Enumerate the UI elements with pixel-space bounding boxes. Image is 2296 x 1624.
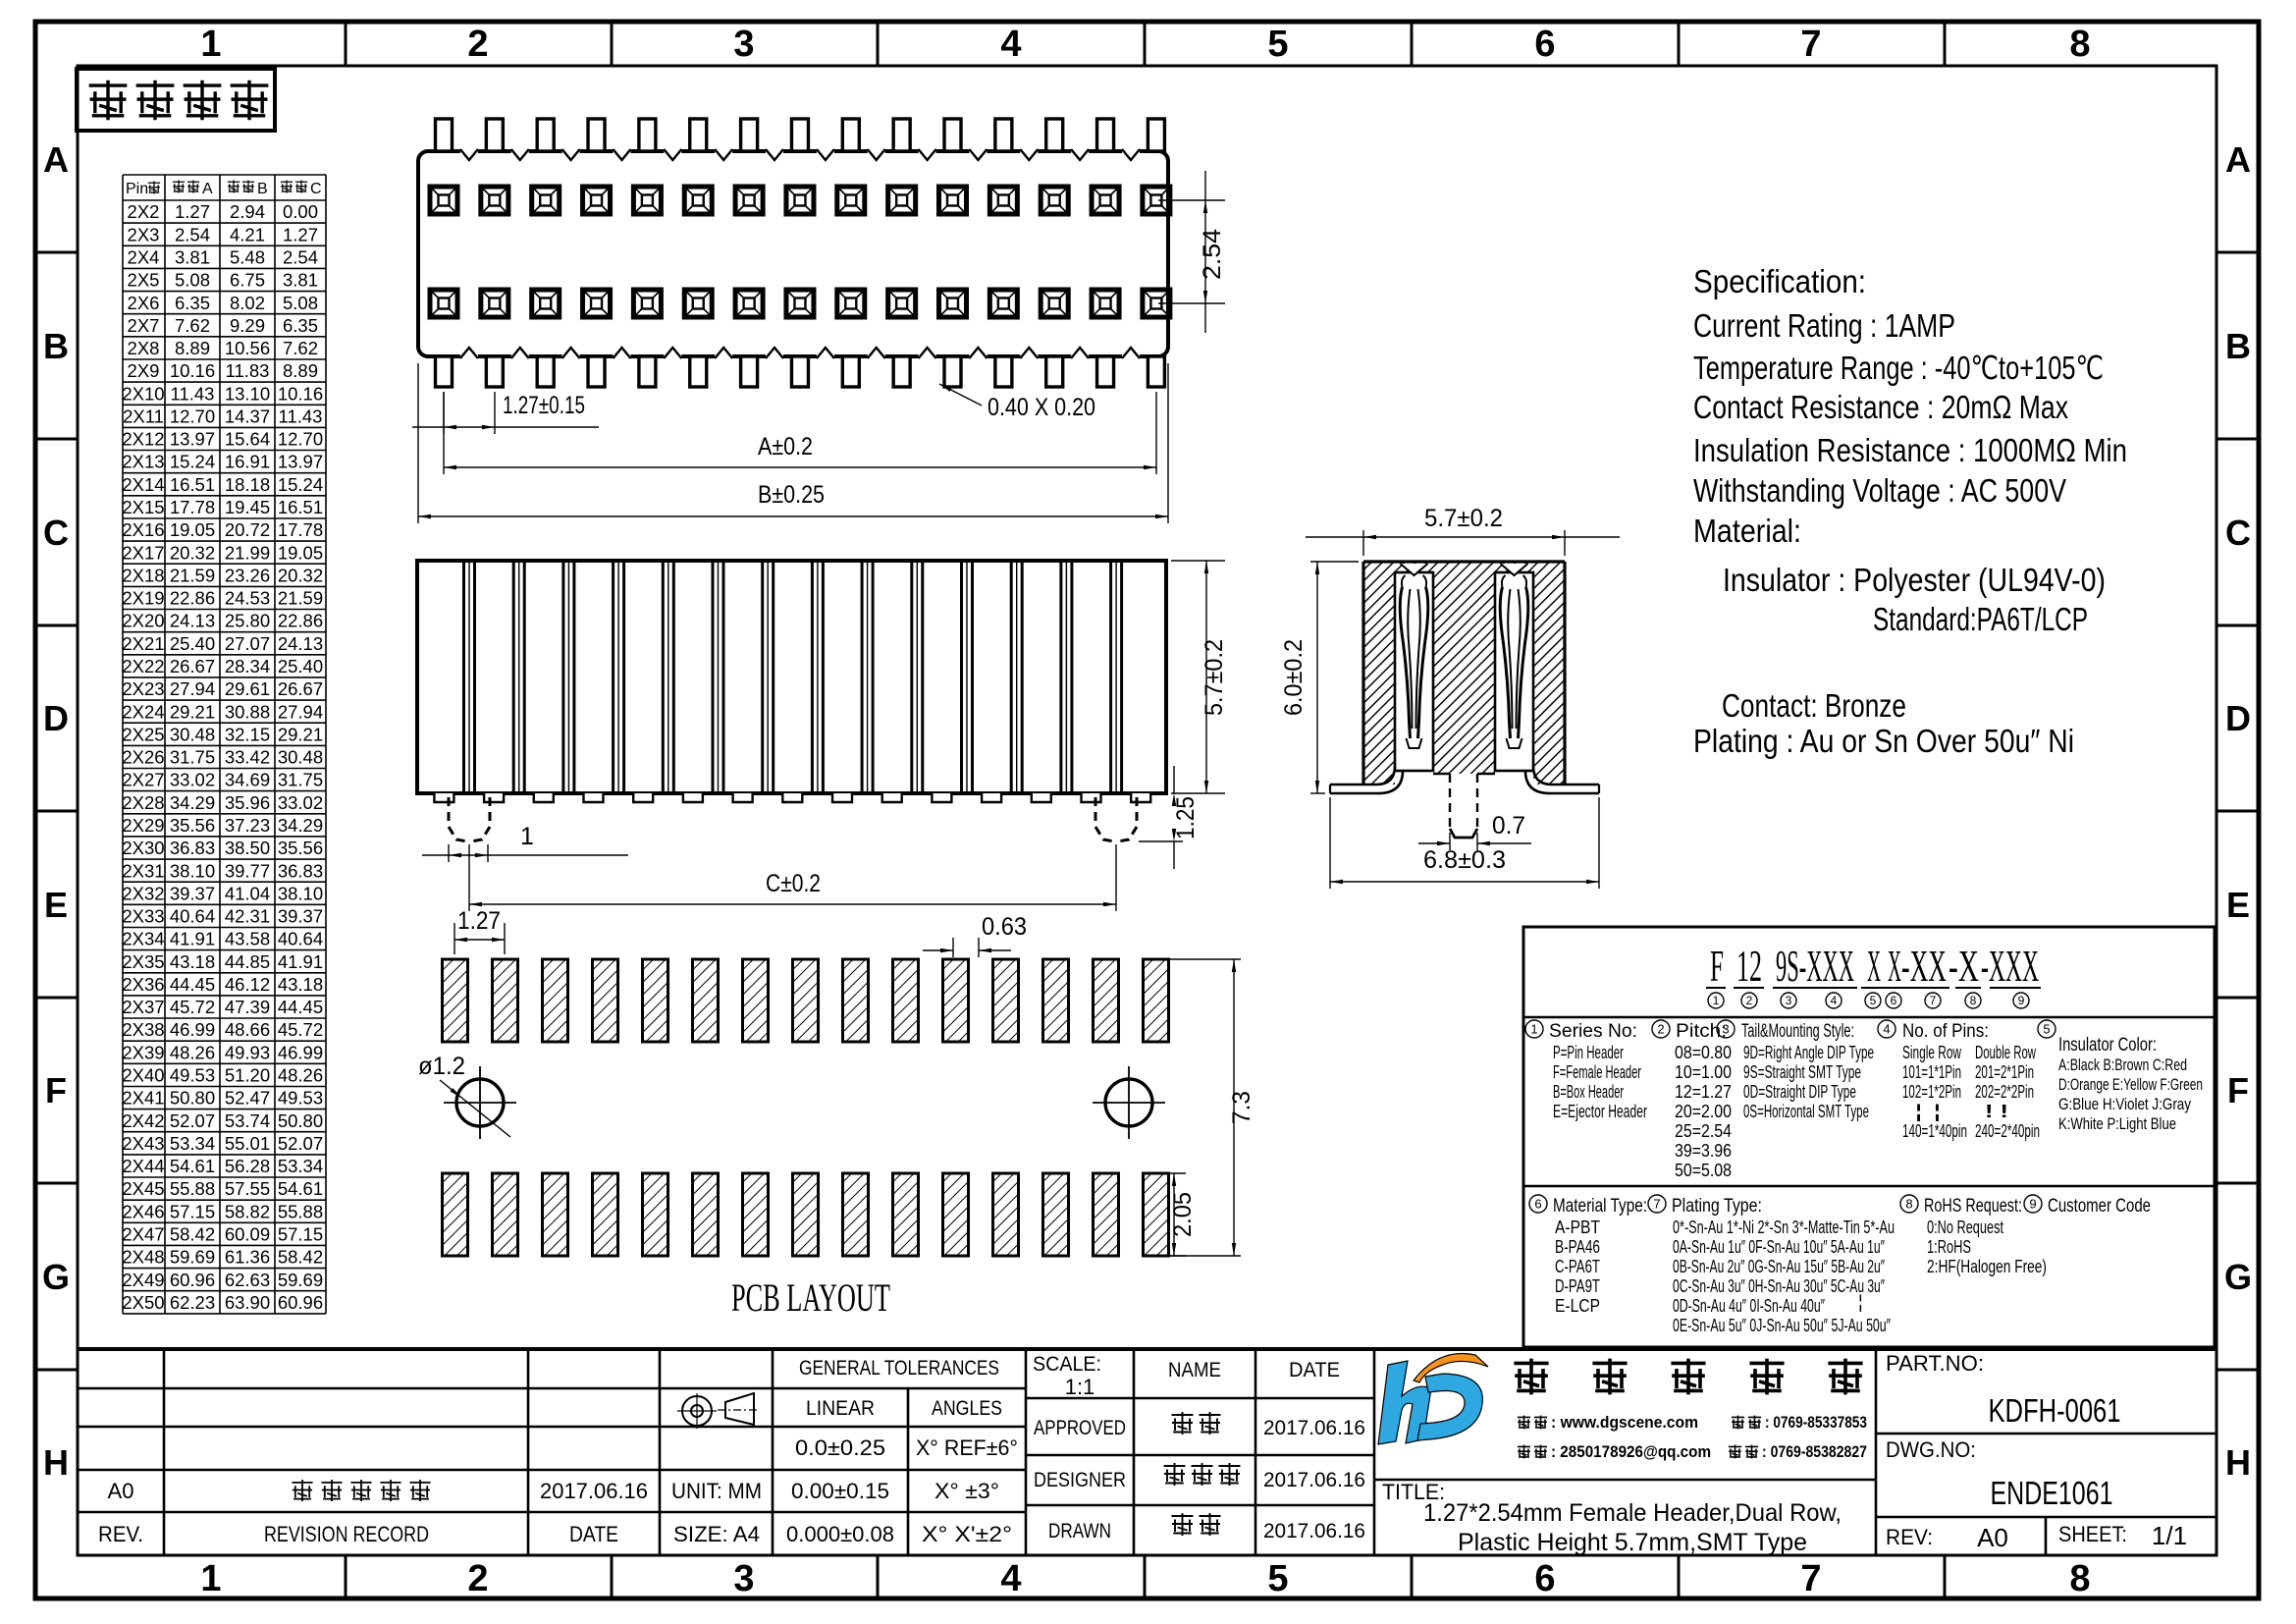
svg-text:Double Row: Double Row [1975,1043,2037,1062]
svg-text:63.90: 63.90 [225,1292,270,1313]
svg-text:43.18: 43.18 [278,974,323,995]
svg-text:! !: ! ! [1985,1102,2008,1121]
svg-text:REV.: REV. [98,1522,143,1546]
svg-text:30.48: 30.48 [278,747,323,768]
svg-text:12=1.27: 12=1.27 [1675,1082,1732,1102]
svg-text:0.40 X 0.20: 0.40 X 0.20 [988,394,1095,421]
svg-text:Pin: Pin [126,181,148,197]
svg-text:1.27*2.54mm Female Header,Dual: 1.27*2.54mm Female Header,Dual Row, [1423,1499,1842,1527]
svg-text:2:HF(Halogen Free): 2:HF(Halogen Free) [1927,1257,2047,1276]
svg-text:17.78: 17.78 [170,497,215,517]
svg-text:B: B [2225,326,2251,366]
svg-text:7: 7 [1653,1197,1660,1212]
svg-text:2X45: 2X45 [122,1178,164,1199]
svg-text:15.64: 15.64 [225,429,270,450]
svg-text:KDFH-0061: KDFH-0061 [1989,1392,2121,1429]
svg-text:10.16: 10.16 [278,383,323,404]
svg-text:59.69: 59.69 [170,1247,215,1268]
svg-text:SIZE: A4: SIZE: A4 [673,1522,760,1546]
svg-text:DESIGNER: DESIGNER [1034,1469,1126,1491]
svg-text:40.64: 40.64 [170,906,215,927]
svg-text:C±0.2: C±0.2 [766,870,821,897]
svg-text:Material:: Material: [1693,513,1801,549]
svg-text:26.67: 26.67 [278,678,323,699]
svg-text:C: C [43,513,69,553]
svg-text:43.58: 43.58 [225,929,270,949]
svg-text:2X25: 2X25 [122,724,164,744]
svg-text:: 0769-85337853: : 0769-85337853 [1765,1413,1867,1432]
svg-text:53.34: 53.34 [170,1133,215,1154]
svg-text:7.3: 7.3 [1228,1091,1255,1124]
svg-text:A0: A0 [1977,1523,2008,1552]
svg-text:140=1*40pin: 140=1*40pin [1902,1121,1967,1141]
svg-text:¦: ¦ [1858,1292,1863,1312]
svg-text:2.05: 2.05 [1169,1192,1197,1237]
svg-text:: 0769-85382827: : 0769-85382827 [1762,1442,1867,1461]
svg-text:: www.dgscene.com: : www.dgscene.com [1551,1413,1698,1432]
svg-text:5: 5 [1267,24,1288,65]
svg-text:38.10: 38.10 [278,883,323,903]
svg-text:29.21: 29.21 [278,724,323,744]
svg-text:24.13: 24.13 [170,611,215,631]
svg-text:DWG.NO:: DWG.NO: [1886,1437,1976,1462]
svg-text:49.93: 49.93 [225,1042,270,1062]
svg-text:36.83: 36.83 [170,838,215,858]
svg-text:2: 2 [467,24,488,65]
svg-text:19.05: 19.05 [278,542,323,563]
svg-text:1.27: 1.27 [175,201,210,222]
svg-text:33.42: 33.42 [225,747,270,768]
svg-text:RoHS Request:: RoHS Request: [1924,1196,2022,1217]
svg-text:24.53: 24.53 [225,588,270,609]
svg-text:E=Ejector Header: E=Ejector Header [1553,1102,1647,1121]
svg-text:F: F [1710,941,1724,991]
svg-text:4: 4 [1831,994,1838,1007]
svg-text:23.26: 23.26 [225,565,270,585]
svg-text:12.70: 12.70 [170,406,215,427]
svg-text:C: C [2225,513,2251,553]
svg-text:10.16: 10.16 [170,360,215,381]
svg-text:31.75: 31.75 [278,770,323,790]
svg-text:2X16: 2X16 [122,519,164,540]
svg-text:0D-Sn-Au 4u″ 0I-Sn-Au 40u″: 0D-Sn-Au 4u″ 0I-Sn-Au 40u″ [1673,1296,1825,1316]
svg-text:59.69: 59.69 [278,1270,323,1290]
svg-text:A:Black B:Brown C:Red: A:Black B:Brown C:Red [2058,1056,2187,1074]
svg-text:11.83: 11.83 [226,360,270,381]
svg-text:ANGLES: ANGLES [932,1397,1002,1420]
svg-text:51.20: 51.20 [225,1065,270,1086]
svg-text:F: F [2227,1070,2249,1110]
svg-text:8.02: 8.02 [230,293,265,313]
svg-text:2X17: 2X17 [122,542,164,563]
svg-text:2X47: 2X47 [122,1224,164,1245]
svg-text:2X9: 2X9 [128,360,160,381]
svg-text:2X32: 2X32 [122,883,164,903]
svg-text:-XX: -XX [1901,941,1947,991]
svg-text:A0: A0 [108,1479,134,1503]
svg-text:2X39: 2X39 [122,1042,164,1062]
svg-text:4: 4 [1000,1558,1021,1599]
svg-text:A: A [202,181,213,197]
svg-text:5.48: 5.48 [230,247,265,268]
svg-text:D: D [2225,698,2251,738]
svg-text:No. of Pins:: No. of Pins: [1902,1021,1989,1042]
svg-text:A±0.2: A±0.2 [758,433,813,460]
svg-text:62.63: 62.63 [225,1270,270,1290]
svg-text:50.80: 50.80 [170,1088,215,1109]
svg-text:38.50: 38.50 [225,838,270,858]
svg-text:6: 6 [1534,24,1555,65]
svg-text:F: F [45,1070,67,1110]
svg-text:0D=Straight DIP Type: 0D=Straight DIP Type [1743,1082,1856,1102]
svg-text:LINEAR: LINEAR [806,1397,875,1420]
svg-text:33.02: 33.02 [278,792,323,813]
svg-text:33.02: 33.02 [170,770,215,790]
svg-text:2X2: 2X2 [128,201,160,222]
svg-text:GENERAL TOLERANCES: GENERAL TOLERANCES [799,1357,999,1380]
svg-text:34.29: 34.29 [170,792,215,813]
svg-text:2X43: 2X43 [122,1133,164,1154]
svg-text:1:1: 1:1 [1065,1375,1095,1399]
svg-text:53.34: 53.34 [278,1156,323,1176]
svg-text:E: E [44,885,68,925]
svg-text:2X18: 2X18 [122,565,164,585]
svg-text:34.29: 34.29 [278,815,323,836]
svg-text:62.23: 62.23 [170,1292,215,1313]
svg-text:44.45: 44.45 [170,974,215,995]
svg-text:58.42: 58.42 [278,1247,323,1268]
svg-text:2017.06.16: 2017.06.16 [1263,1520,1365,1543]
svg-text:16.51: 16.51 [278,497,323,517]
svg-text:17.78: 17.78 [278,519,323,540]
svg-text:0C-Sn-Au 3u″ 0H-Sn-Au 30u″ 5C: 0C-Sn-Au 3u″ 0H-Sn-Au 30u″ 5C-Au 3u″ [1673,1276,1885,1296]
svg-text:3.81: 3.81 [175,247,210,268]
svg-text:9D=Right Angle DIP Type: 9D=Right Angle DIP Type [1743,1043,1874,1062]
svg-text:Material Type:: Material Type: [1553,1196,1647,1217]
svg-text:12.70: 12.70 [278,429,323,450]
svg-text:2X5: 2X5 [128,270,160,291]
svg-text:48.26: 48.26 [170,1042,215,1062]
svg-text:X° ±3°: X° ±3° [934,1479,999,1503]
svg-text:38.10: 38.10 [170,860,215,881]
svg-text:35.96: 35.96 [225,792,270,813]
svg-text:30.48: 30.48 [170,724,215,744]
svg-text:2X33: 2X33 [122,906,164,927]
svg-text:Standard:PA6T/LCP: Standard:PA6T/LCP [1873,601,2088,637]
svg-text:50=5.08: 50=5.08 [1675,1161,1732,1180]
svg-text:2.54: 2.54 [175,224,210,244]
svg-text:30.88: 30.88 [225,701,270,722]
svg-text:2X38: 2X38 [122,1019,164,1040]
svg-text:22.86: 22.86 [170,588,215,609]
svg-text:X° X'±2°: X° X'±2° [922,1522,1012,1546]
svg-text:2X22: 2X22 [122,656,164,677]
svg-text:2X3: 2X3 [128,224,160,244]
svg-text:8: 8 [2069,1558,2090,1599]
svg-text:0.000±0.08: 0.000±0.08 [786,1522,894,1546]
svg-text:45.72: 45.72 [278,1019,323,1040]
svg-text:2X27: 2X27 [122,770,164,790]
svg-text:08=0.80: 08=0.80 [1675,1043,1732,1062]
svg-text:2X44: 2X44 [122,1156,164,1176]
svg-text:1.27: 1.27 [457,907,501,935]
svg-text:25=2.54: 25=2.54 [1675,1121,1732,1141]
svg-text:DRAWN: DRAWN [1048,1520,1111,1543]
svg-text:3: 3 [733,1558,754,1599]
svg-text:Current Rating : 1AMP: Current Rating : 1AMP [1693,307,1955,344]
svg-text:B: B [43,326,69,366]
svg-text:2X14: 2X14 [122,474,164,495]
svg-text:3: 3 [1786,994,1792,1007]
svg-text:48.66: 48.66 [225,1019,270,1040]
svg-text:60.96: 60.96 [170,1270,215,1290]
svg-text:2X8: 2X8 [128,338,160,358]
svg-text:0*-Sn-Au 1*-Ni 2*-Sn 3*-Matte-: 0*-Sn-Au 1*-Ni 2*-Sn 3*-Matte-Tin 5*-Au [1673,1218,1895,1237]
svg-text:7.62: 7.62 [283,338,318,358]
svg-text:-X: -X [1949,941,1979,991]
svg-text:F=Female Header: F=Female Header [1553,1062,1641,1082]
svg-text:2X21: 2X21 [122,633,164,654]
svg-text:49.53: 49.53 [170,1065,215,1086]
svg-text:0.00: 0.00 [283,201,318,222]
svg-text:2X6: 2X6 [128,293,160,313]
svg-text:46.99: 46.99 [278,1042,323,1062]
svg-text:E-LCP: E-LCP [1555,1296,1600,1316]
svg-text:APPROVED: APPROVED [1034,1417,1126,1439]
svg-text:2X12: 2X12 [122,429,164,450]
svg-text:Contact: Bronze: Contact: Bronze [1722,687,1906,724]
svg-text:DATE: DATE [569,1522,618,1546]
svg-text:4: 4 [1000,24,1021,65]
svg-text:Insulation Resistance : 1000MΩ: Insulation Resistance : 1000MΩ Min [1693,432,2127,468]
svg-text:A: A [2225,139,2251,180]
svg-text:0S=Horizontal SMT Type: 0S=Horizontal SMT Type [1743,1102,1869,1121]
svg-text:20.32: 20.32 [278,565,323,585]
svg-text:5: 5 [1267,1558,1288,1599]
svg-text:2X31: 2X31 [122,860,164,881]
svg-text:46.99: 46.99 [170,1019,215,1040]
svg-text:3: 3 [733,24,754,65]
svg-text:Plastic Height 5.7mm,SMT Type: Plastic Height 5.7mm,SMT Type [1458,1529,1807,1556]
svg-text:2.54: 2.54 [1199,229,1226,280]
svg-text:8: 8 [1970,994,1977,1007]
svg-text:0.00±0.15: 0.00±0.15 [791,1479,889,1503]
svg-text:41.04: 41.04 [225,883,270,903]
svg-text:REVISION RECORD: REVISION RECORD [264,1522,429,1546]
svg-text:Withstanding Voltage : AC 500V: Withstanding Voltage : AC 500V [1693,472,2066,509]
svg-text:15.24: 15.24 [278,474,323,495]
svg-text:11.43: 11.43 [279,406,323,427]
svg-text:6.35: 6.35 [175,293,210,313]
svg-text:2X23: 2X23 [122,678,164,699]
svg-text:5: 5 [1870,994,1877,1007]
svg-text:REV:: REV: [1886,1525,1933,1549]
svg-text:21.99: 21.99 [225,542,270,563]
svg-text:1: 1 [200,24,221,65]
svg-text:Plating Type:: Plating Type: [1672,1196,1762,1217]
svg-text:6.75: 6.75 [230,270,265,291]
svg-text:7: 7 [1800,24,1821,65]
svg-text:2X29: 2X29 [122,815,164,836]
svg-text:58.42: 58.42 [170,1224,215,1245]
svg-text:18.18: 18.18 [225,474,270,495]
svg-text:2X48: 2X48 [122,1247,164,1268]
svg-text:D: D [43,698,69,738]
svg-text:2X41: 2X41 [122,1088,164,1109]
svg-text:3.81: 3.81 [283,270,318,291]
svg-text:37.23: 37.23 [225,815,270,836]
svg-text:B-PA46: B-PA46 [1555,1237,1600,1257]
svg-text:SCALE:: SCALE: [1033,1353,1101,1376]
svg-text:D-PA9T: D-PA9T [1555,1276,1600,1296]
svg-text:32.15: 32.15 [225,724,270,744]
svg-text:54.61: 54.61 [278,1178,323,1199]
svg-text:5.7±0.2: 5.7±0.2 [1424,505,1503,532]
svg-text:13.10: 13.10 [225,383,270,404]
svg-text:P=Pin Header: P=Pin Header [1553,1043,1624,1062]
svg-text:57.15: 57.15 [170,1201,215,1221]
svg-text:27.94: 27.94 [170,678,215,699]
svg-text:57.55: 57.55 [225,1178,270,1199]
svg-text:6: 6 [1534,1197,1541,1212]
svg-text:52.47: 52.47 [225,1088,270,1109]
svg-text:Specification:: Specification: [1693,263,1866,299]
svg-text:2X20: 2X20 [122,611,164,631]
svg-text:31.75: 31.75 [170,747,215,768]
svg-text:1/1: 1/1 [2152,1521,2187,1550]
svg-text:NAME: NAME [1168,1359,1221,1381]
svg-text:19.05: 19.05 [170,519,215,540]
svg-text:2.94: 2.94 [230,201,265,222]
svg-text:13.97: 13.97 [278,452,323,472]
svg-text:44.45: 44.45 [278,997,323,1017]
svg-text:6: 6 [1534,1558,1555,1599]
svg-text:45.72: 45.72 [170,997,215,1017]
svg-text:2X10: 2X10 [122,383,164,404]
svg-text:DATE: DATE [1289,1359,1340,1381]
svg-text:0.0±0.25: 0.0±0.25 [795,1435,885,1460]
svg-text:2X7: 2X7 [128,315,160,336]
svg-text:41.91: 41.91 [170,929,215,949]
svg-text:2: 2 [1657,1022,1664,1037]
svg-text:25.80: 25.80 [225,611,270,631]
svg-text:22.86: 22.86 [278,611,323,631]
svg-text:27.07: 27.07 [225,633,270,654]
svg-text:2X30: 2X30 [122,838,164,858]
svg-text:6: 6 [1891,994,1897,1007]
svg-text:13.97: 13.97 [170,429,215,450]
svg-text:2X49: 2X49 [122,1270,164,1290]
svg-text:6.35: 6.35 [283,315,318,336]
svg-text:0.63: 0.63 [982,913,1027,941]
svg-text:1: 1 [200,1558,221,1599]
svg-text:240=2*40pin: 240=2*40pin [1975,1121,2040,1141]
svg-text:B±0.25: B±0.25 [758,481,825,509]
svg-text:9: 9 [2018,994,2025,1007]
svg-text:H: H [2225,1442,2251,1483]
svg-text:8: 8 [1905,1197,1912,1212]
svg-text:60.96: 60.96 [278,1292,323,1313]
svg-text:2X19: 2X19 [122,588,164,609]
svg-text:27.94: 27.94 [278,701,323,722]
svg-text:2X34: 2X34 [122,929,164,949]
svg-text:7: 7 [1800,1558,1821,1599]
svg-text:55.01: 55.01 [225,1133,270,1154]
svg-text:61.36: 61.36 [225,1247,270,1268]
svg-text:1: 1 [1530,1022,1537,1037]
svg-text:26.67: 26.67 [170,656,215,677]
svg-text:21.59: 21.59 [278,588,323,609]
svg-text:14.37: 14.37 [225,406,270,427]
svg-text:2: 2 [1746,994,1753,1007]
svg-text:39.37: 39.37 [278,906,323,927]
svg-text:Temperature Range : -40℃to+105: Temperature Range : -40℃to+105℃ [1693,350,2104,386]
svg-text:29.21: 29.21 [170,701,215,722]
svg-text:0B-Sn-Au 2u″ 0G-Sn-Au 15u″ 5B: 0B-Sn-Au 2u″ 0G-Sn-Au 15u″ 5B-Au 2u″ [1673,1257,1885,1276]
svg-text:12: 12 [1736,941,1762,991]
svg-text:Series No:: Series No: [1549,1021,1637,1042]
svg-text:X: X [1888,941,1901,991]
svg-text:2: 2 [467,1558,488,1599]
svg-text:54.61: 54.61 [170,1156,215,1176]
svg-text:16.91: 16.91 [225,452,270,472]
svg-text:A: A [43,139,69,180]
svg-text:2X11: 2X11 [123,406,164,427]
svg-text:9.29: 9.29 [230,315,265,336]
svg-text:20=2.00: 20=2.00 [1675,1102,1732,1121]
svg-text:PART.NO:: PART.NO: [1886,1351,1984,1376]
svg-text:1.27: 1.27 [283,224,318,244]
svg-text:39.77: 39.77 [225,860,270,881]
svg-text:9: 9 [2029,1197,2036,1212]
svg-text:25.40: 25.40 [170,633,215,654]
svg-text:58.82: 58.82 [225,1201,270,1221]
svg-text:47.39: 47.39 [225,997,270,1017]
svg-text:UNIT: MM: UNIT: MM [671,1479,762,1503]
svg-text:2.54: 2.54 [283,247,318,268]
svg-text:20.32: 20.32 [170,542,215,563]
svg-text:52.07: 52.07 [278,1133,323,1154]
svg-text:ø1.2: ø1.2 [418,1053,465,1080]
svg-text:1: 1 [1713,994,1720,1007]
svg-text:55.88: 55.88 [278,1201,323,1221]
svg-text:0:No Request: 0:No Request [1927,1218,2003,1237]
svg-text:8.89: 8.89 [283,360,318,381]
svg-text:E: E [2226,885,2250,925]
svg-text:50.80: 50.80 [278,1110,323,1131]
svg-text:8.89: 8.89 [175,338,210,358]
svg-text:2X15: 2X15 [122,497,164,517]
svg-text:H: H [43,1442,69,1483]
svg-text:2017.06.16: 2017.06.16 [1263,1417,1365,1439]
svg-text:2X24: 2X24 [122,701,164,722]
svg-text:Contact Resistance : 20mΩ Max: Contact Resistance : 20mΩ Max [1693,389,2068,425]
svg-text:Plating : Au or Sn Over 50u″ N: Plating : Au or Sn Over 50u″ Ni [1693,723,2074,759]
svg-text:Insulator Color:: Insulator Color: [2058,1035,2157,1056]
svg-text:2X46: 2X46 [122,1201,164,1221]
svg-text:49.53: 49.53 [278,1088,323,1109]
svg-text:4.21: 4.21 [230,224,265,244]
svg-text:A-PBT: A-PBT [1555,1218,1600,1237]
svg-text:2X37: 2X37 [122,997,164,1017]
svg-text:K:White P:Light Blue: K:White P:Light Blue [2058,1114,2176,1133]
svg-text:19.45: 19.45 [225,497,270,517]
svg-text:8: 8 [2069,24,2090,65]
svg-text:5.08: 5.08 [283,293,318,313]
svg-text:Single Row: Single Row [1902,1043,1962,1062]
svg-text:G: G [2224,1257,2252,1297]
svg-text:10.56: 10.56 [225,338,270,358]
